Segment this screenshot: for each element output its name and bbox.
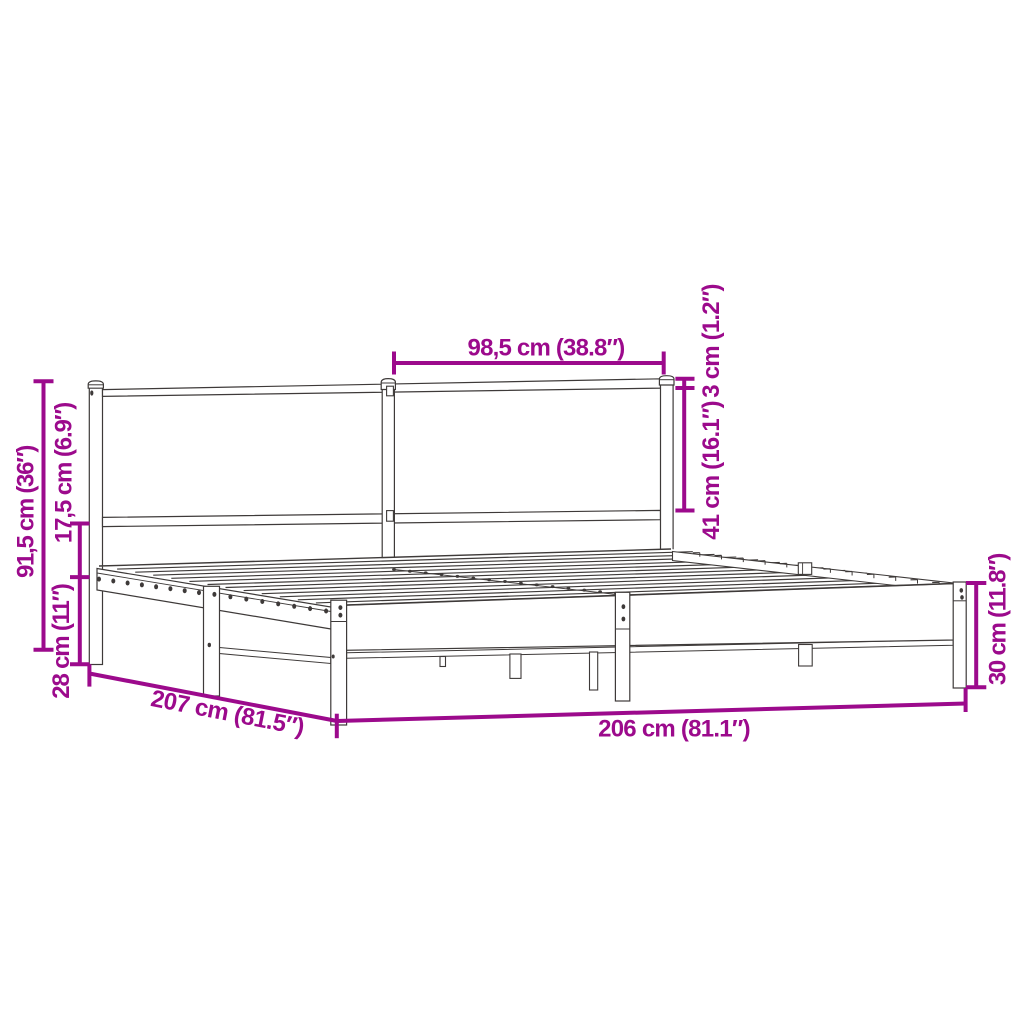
svg-text:98,5 cm (38.8″): 98,5 cm (38.8″) [468, 335, 625, 362]
svg-text:3 cm (1.2″): 3 cm (1.2″) [698, 284, 725, 397]
svg-text:17,5 cm (6.9″): 17,5 cm (6.9″) [51, 403, 78, 543]
svg-text:41 cm (16.1″): 41 cm (16.1″) [698, 401, 725, 540]
svg-text:30 cm (11.8″): 30 cm (11.8″) [985, 554, 1012, 686]
svg-text:206 cm (81.1″): 206 cm (81.1″) [598, 716, 750, 743]
svg-text:91,5 cm (36″): 91,5 cm (36″) [13, 446, 40, 578]
svg-text:28 cm (11″): 28 cm (11″) [48, 584, 75, 699]
